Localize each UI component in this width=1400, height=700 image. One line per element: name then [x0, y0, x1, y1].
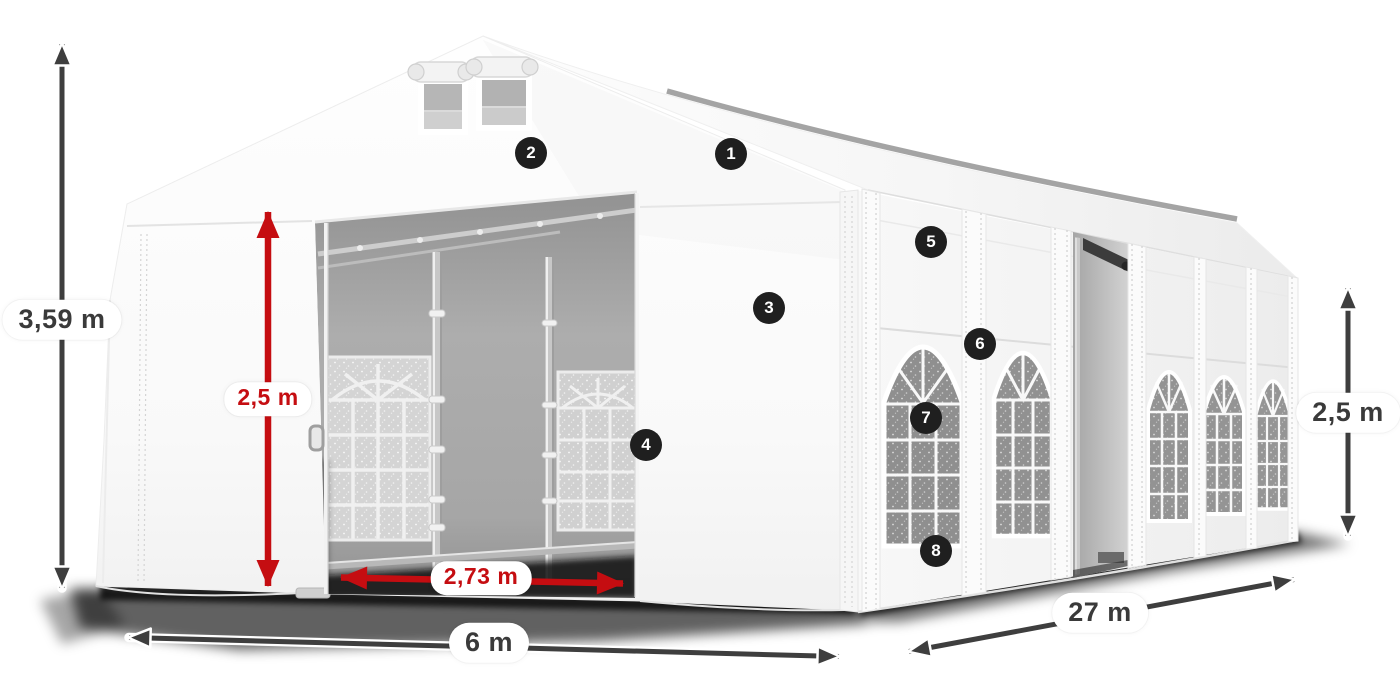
callout-badge-8: 8: [920, 535, 952, 567]
side-window: [994, 353, 1052, 536]
length-label: 27 m: [1052, 593, 1148, 633]
tent-illustration: [0, 0, 1400, 700]
door-width-label: 2,73 m: [431, 561, 532, 595]
tent-dimension-diagram: 3,59 m 2,5 m 2,73 m 6 m 27 m 2,5 m 1 2 3…: [0, 0, 1400, 700]
side-height-label: 2,5 m: [1296, 393, 1400, 433]
interior-window: [558, 372, 637, 530]
door-height-label: 2,5 m: [224, 382, 311, 416]
side-window: [1204, 377, 1244, 514]
front-door-opening: [315, 193, 637, 598]
total-height-label: 3,59 m: [2, 300, 121, 340]
callout-badge-1: 1: [715, 138, 747, 170]
side-window: [1148, 372, 1190, 521]
callout-badge-5: 5: [915, 226, 947, 258]
side-window: [1256, 381, 1290, 509]
callout-badge-6: 6: [964, 328, 996, 360]
gable-vent: [466, 57, 538, 131]
corner-pillar: [840, 190, 858, 612]
interior-window: [327, 357, 430, 540]
callout-badge-3: 3: [753, 292, 785, 324]
side-door-opening: [1073, 232, 1131, 578]
side-window: [884, 347, 962, 546]
callout-badge-7: 7: [910, 402, 942, 434]
callout-badge-4: 4: [630, 429, 662, 461]
width-label: 6 m: [449, 623, 529, 663]
door-handle: [310, 426, 323, 450]
callout-badge-2: 2: [515, 137, 547, 169]
